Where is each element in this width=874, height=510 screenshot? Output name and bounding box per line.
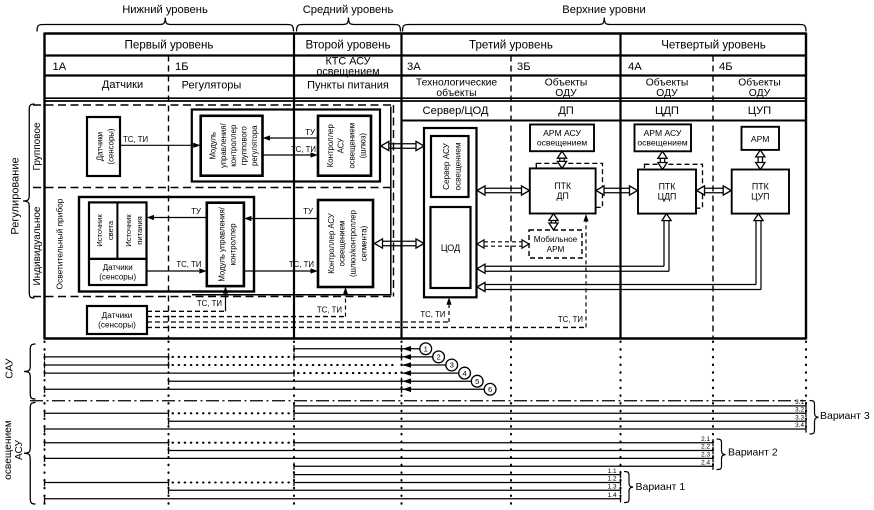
svg-text:освещением: освещением (348, 123, 357, 169)
svg-text:ЦДП: ЦДП (658, 191, 677, 201)
svg-text:3А: 3А (407, 61, 421, 73)
svg-text:Индивидуальное: Индивидуальное (32, 206, 43, 285)
svg-text:освещением: освещением (537, 138, 587, 148)
svg-text:управления/: управления/ (219, 123, 228, 169)
svg-text:ТС, ТИ: ТС, ТИ (289, 260, 314, 269)
svg-text:света: света (106, 220, 115, 240)
svg-text:освещением: освещением (453, 142, 462, 190)
svg-text:Сервер АСУ: Сервер АСУ (442, 142, 451, 190)
svg-text:Модуль: Модуль (209, 132, 218, 160)
svg-text:Регуляторы: Регуляторы (182, 80, 242, 92)
svg-text:ПТК: ПТК (659, 182, 677, 192)
svg-text:2: 2 (436, 353, 440, 362)
svg-text:ПТК: ПТК (554, 181, 572, 191)
svg-text:Нижний уровень: Нижний уровень (122, 4, 208, 16)
svg-text:САУ: САУ (5, 358, 16, 379)
svg-text:1.1: 1.1 (608, 468, 617, 475)
svg-text:Третий уровень: Третий уровень (469, 38, 553, 51)
svg-text:(шлюз): (шлюз) (358, 133, 367, 159)
svg-text:Модуль управления/: Модуль управления/ (217, 206, 226, 281)
svg-text:3.3: 3.3 (795, 414, 804, 421)
svg-text:3.2: 3.2 (795, 407, 804, 414)
svg-text:освещением: освещением (637, 138, 687, 148)
svg-text:1.2: 1.2 (608, 476, 617, 483)
svg-text:ЦОД: ЦОД (441, 243, 460, 253)
svg-text:питания: питания (135, 216, 144, 245)
svg-text:2.3: 2.3 (701, 452, 710, 459)
svg-text:ТС, ТИ: ТС, ТИ (197, 299, 222, 308)
svg-text:Контроллер: Контроллер (326, 124, 335, 168)
svg-text:ЦУП: ЦУП (748, 105, 771, 117)
svg-text:ДП: ДП (558, 105, 574, 117)
svg-text:регулятора: регулятора (250, 125, 259, 166)
svg-text:ОДУ: ОДУ (555, 88, 577, 99)
svg-text:АРМ АСУ: АРМ АСУ (644, 128, 682, 138)
svg-text:ТС, ТИ: ТС, ТИ (558, 315, 583, 324)
svg-text:Вариант 1: Вариант 1 (636, 481, 686, 493)
svg-text:ТС, ТИ: ТС, ТИ (317, 306, 342, 315)
svg-text:Верхние уровни: Верхние уровни (562, 4, 645, 16)
svg-text:сегмента): сегмента) (359, 225, 368, 261)
svg-text:ТУ: ТУ (191, 207, 201, 216)
svg-text:Объекты: Объекты (545, 77, 587, 89)
svg-text:АСУ: АСУ (14, 439, 25, 460)
svg-text:Осветительный прибор: Осветительный прибор (55, 198, 65, 289)
svg-text:1Б: 1Б (175, 61, 189, 73)
svg-text:Датчики: Датчики (102, 311, 133, 320)
svg-text:контроллер: контроллер (229, 124, 238, 167)
svg-text:ТС, ТИ: ТС, ТИ (420, 310, 445, 319)
svg-text:Технологические: Технологические (416, 78, 497, 89)
svg-text:3: 3 (450, 361, 454, 370)
svg-text:ТУ: ТУ (305, 128, 315, 137)
svg-text:Регулирование: Регулирование (10, 157, 22, 234)
svg-text:группового: группового (240, 125, 249, 165)
svg-text:4Б: 4Б (719, 61, 733, 73)
svg-text:(сенсоры): (сенсоры) (98, 320, 136, 329)
svg-text:освещением: освещением (3, 420, 14, 480)
svg-text:объекты: объекты (436, 87, 476, 99)
svg-text:Датчики: Датчики (103, 263, 133, 272)
svg-text:(сенсоры): (сенсоры) (107, 128, 116, 164)
svg-text:Вариант 3: Вариант 3 (820, 410, 870, 422)
svg-text:1: 1 (424, 345, 428, 354)
svg-text:Второй уровень: Второй уровень (305, 38, 390, 51)
svg-text:АРМ: АРМ (547, 245, 565, 254)
svg-text:3Б: 3Б (517, 61, 531, 73)
svg-text:(сенсоры): (сенсоры) (99, 272, 136, 281)
svg-text:3.4: 3.4 (795, 422, 804, 429)
svg-text:ПТК: ПТК (752, 182, 770, 192)
svg-text:Групповое: Групповое (32, 122, 43, 170)
svg-text:(шлюз/контроллер: (шлюз/контроллер (349, 209, 358, 277)
svg-text:Первый уровень: Первый уровень (125, 38, 214, 51)
svg-text:1А: 1А (53, 61, 67, 73)
svg-text:Источник: Источник (95, 214, 104, 247)
svg-text:Объекты: Объекты (646, 77, 688, 89)
svg-text:4А: 4А (628, 61, 642, 73)
svg-text:ОДУ: ОДУ (656, 88, 678, 99)
svg-text:ТС, ТИ: ТС, ТИ (176, 260, 201, 269)
svg-text:2.2: 2.2 (701, 444, 710, 451)
svg-text:Объекты: Объекты (738, 77, 780, 89)
svg-text:2.4: 2.4 (701, 459, 710, 466)
svg-text:освещением: освещением (338, 221, 347, 267)
svg-text:Четвертый уровень: Четвертый уровень (661, 38, 766, 51)
svg-text:АРМ: АРМ (751, 134, 770, 144)
svg-text:1.4: 1.4 (608, 492, 617, 499)
svg-text:ДП: ДП (557, 191, 569, 201)
svg-text:Сервер/ЦОД: Сервер/ЦОД (423, 105, 489, 117)
svg-text:Средний уровень: Средний уровень (303, 4, 394, 16)
svg-text:Мобильное: Мобильное (534, 235, 578, 244)
svg-text:АРМ АСУ: АРМ АСУ (543, 128, 581, 138)
svg-text:ТС, ТИ: ТС, ТИ (291, 145, 316, 154)
svg-text:контроллер: контроллер (229, 223, 238, 266)
svg-text:4: 4 (462, 369, 466, 378)
svg-text:Источник: Источник (124, 214, 133, 247)
svg-text:ТС, ТИ: ТС, ТИ (123, 135, 148, 144)
svg-text:Контроллер АСУ: Контроллер АСУ (327, 213, 336, 274)
svg-text:ТУ: ТУ (303, 207, 313, 216)
svg-text:АСУ: АСУ (337, 138, 346, 153)
svg-text:1.3: 1.3 (608, 484, 617, 491)
svg-text:Пункты питания: Пункты питания (307, 80, 389, 92)
svg-text:Датчики: Датчики (102, 79, 143, 91)
svg-text:5: 5 (475, 377, 479, 386)
svg-text:3.1: 3.1 (795, 399, 804, 406)
svg-text:6: 6 (488, 385, 492, 394)
svg-text:2.1: 2.1 (701, 436, 710, 443)
svg-text:Вариант 2: Вариант 2 (728, 447, 778, 459)
svg-text:освещением: освещением (316, 66, 379, 78)
svg-text:Датчики: Датчики (96, 132, 105, 161)
svg-text:ЦДП: ЦДП (655, 105, 679, 117)
svg-text:ЦУП: ЦУП (751, 191, 769, 201)
svg-text:ОДУ: ОДУ (749, 88, 771, 99)
